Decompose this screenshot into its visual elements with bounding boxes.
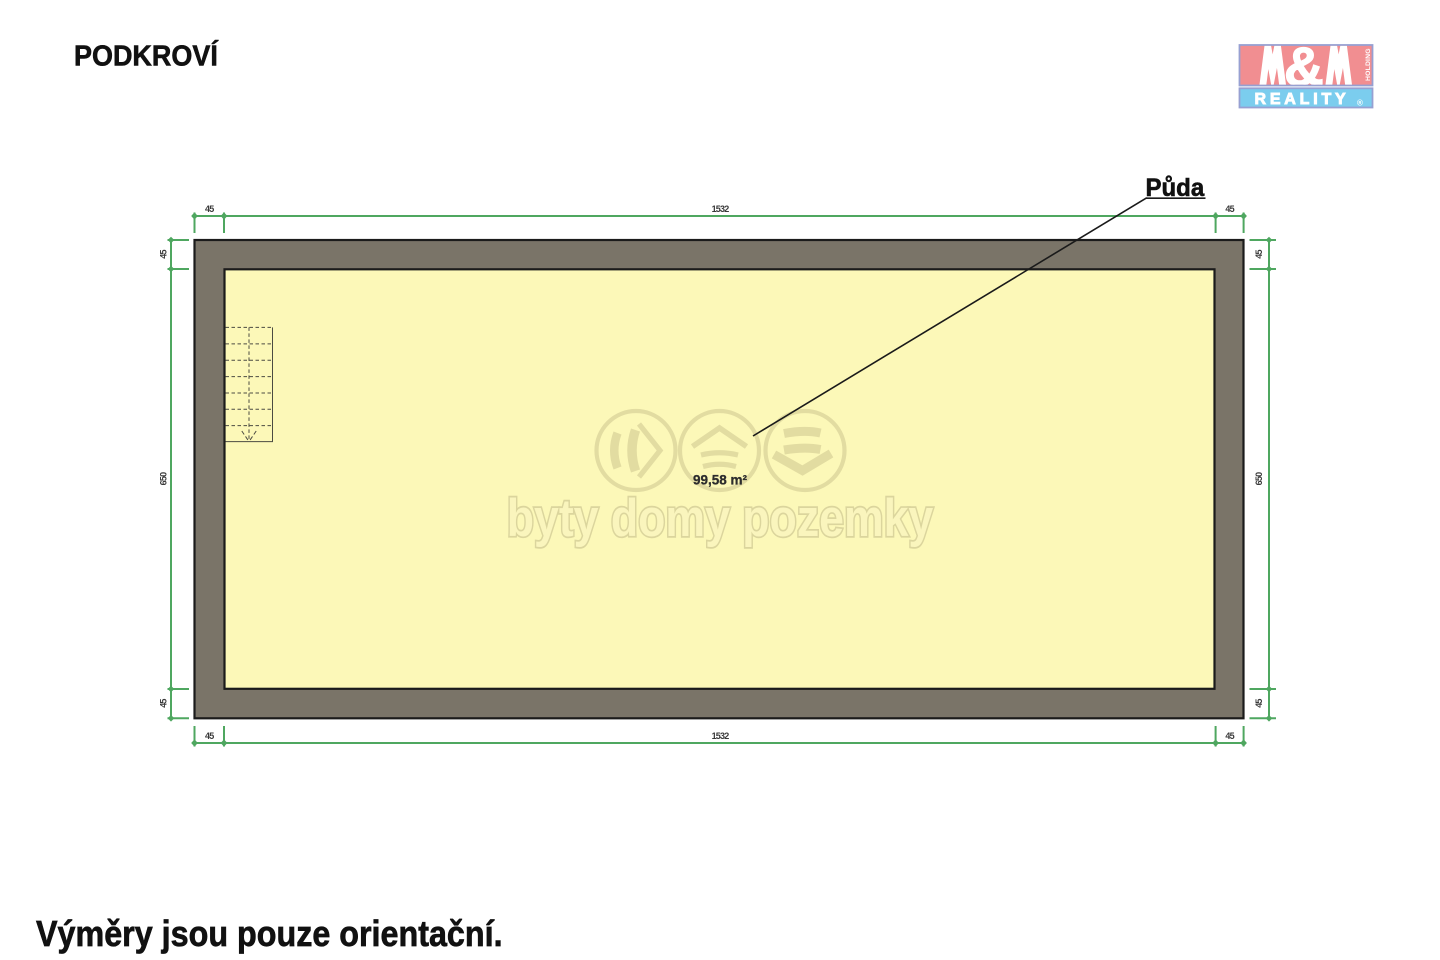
svg-text:Půda: Půda [1146,175,1205,203]
svg-text:45: 45 [1225,204,1234,214]
svg-text:1532: 1532 [712,731,730,741]
svg-text:650: 650 [159,472,169,485]
svg-text:byty domy pozemky: byty domy pozemky [507,490,934,548]
svg-text:99,58 m²: 99,58 m² [693,473,748,488]
svg-text:45: 45 [159,699,169,708]
svg-text:45: 45 [205,204,214,214]
svg-text:HOLDING: HOLDING [1365,48,1372,81]
svg-text:45: 45 [1225,731,1234,741]
svg-text:45: 45 [1254,699,1264,708]
svg-text:45: 45 [205,731,214,741]
svg-text:45: 45 [159,250,169,259]
svg-text:PODKROVÍ: PODKROVÍ [74,40,219,72]
svg-text:REALITY: REALITY [1254,91,1349,108]
svg-text:1532: 1532 [712,204,730,214]
svg-text:®: ® [1357,99,1363,108]
svg-text:650: 650 [1254,472,1264,485]
svg-text:45: 45 [1254,250,1264,259]
svg-text:Výměry jsou pouze orientační.: Výměry jsou pouze orientační. [36,914,503,954]
